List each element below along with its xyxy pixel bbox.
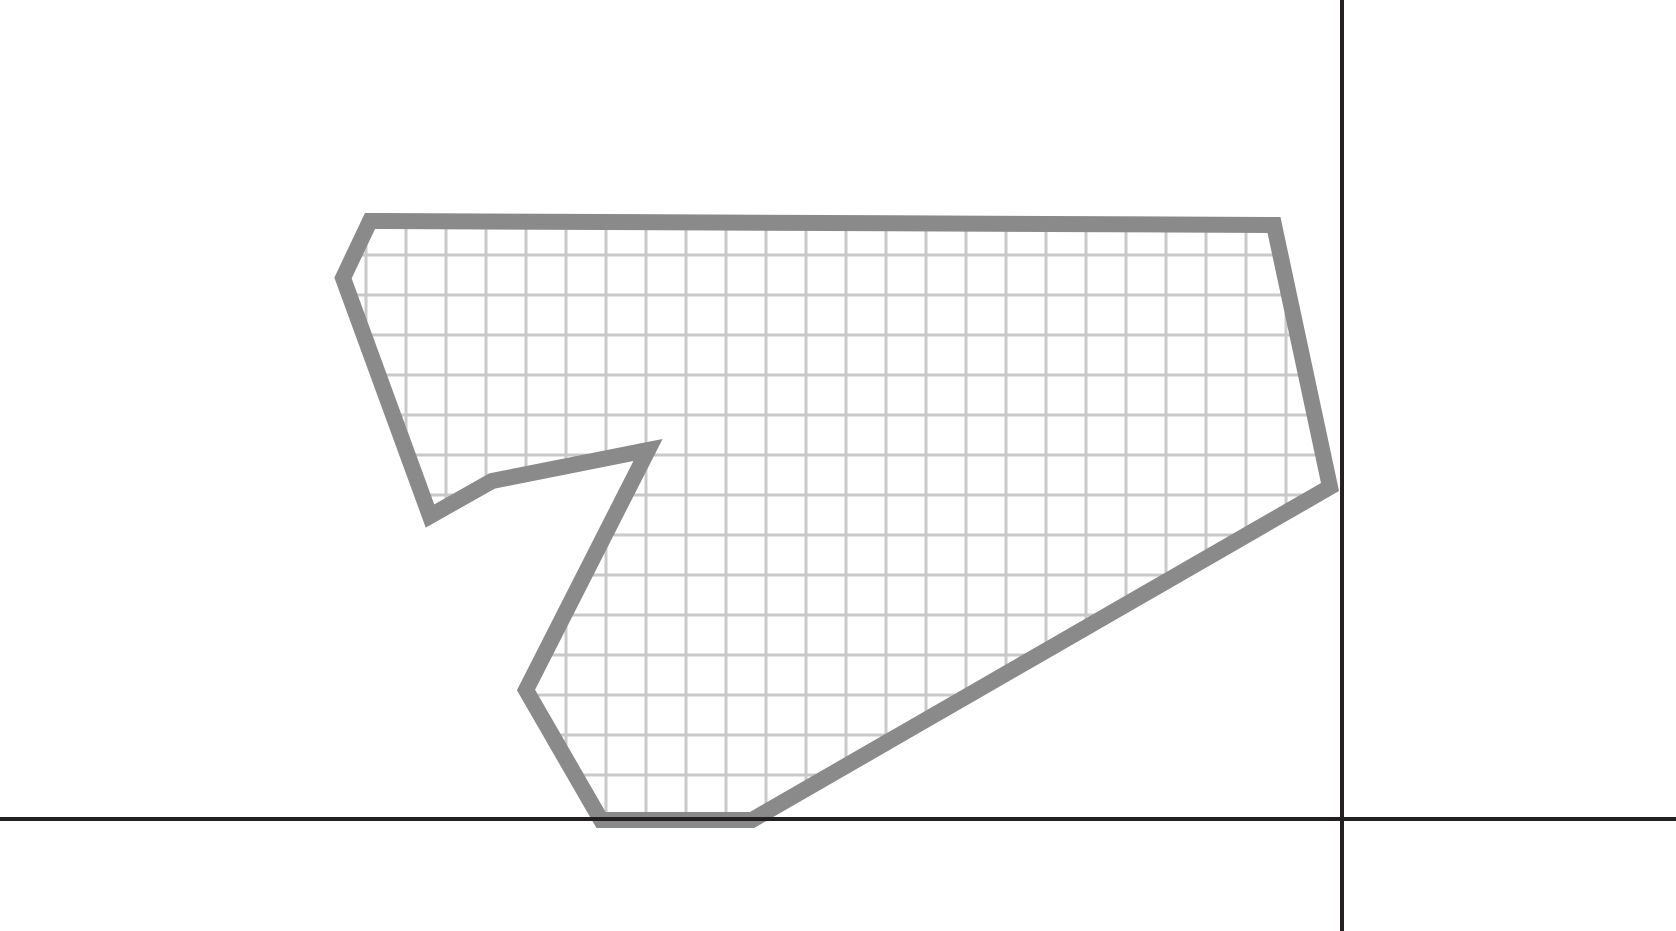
figure-canvas: [0, 0, 1676, 931]
gridded-polygon-shape: [343, 221, 1330, 820]
geometry-figure: [0, 0, 1676, 931]
